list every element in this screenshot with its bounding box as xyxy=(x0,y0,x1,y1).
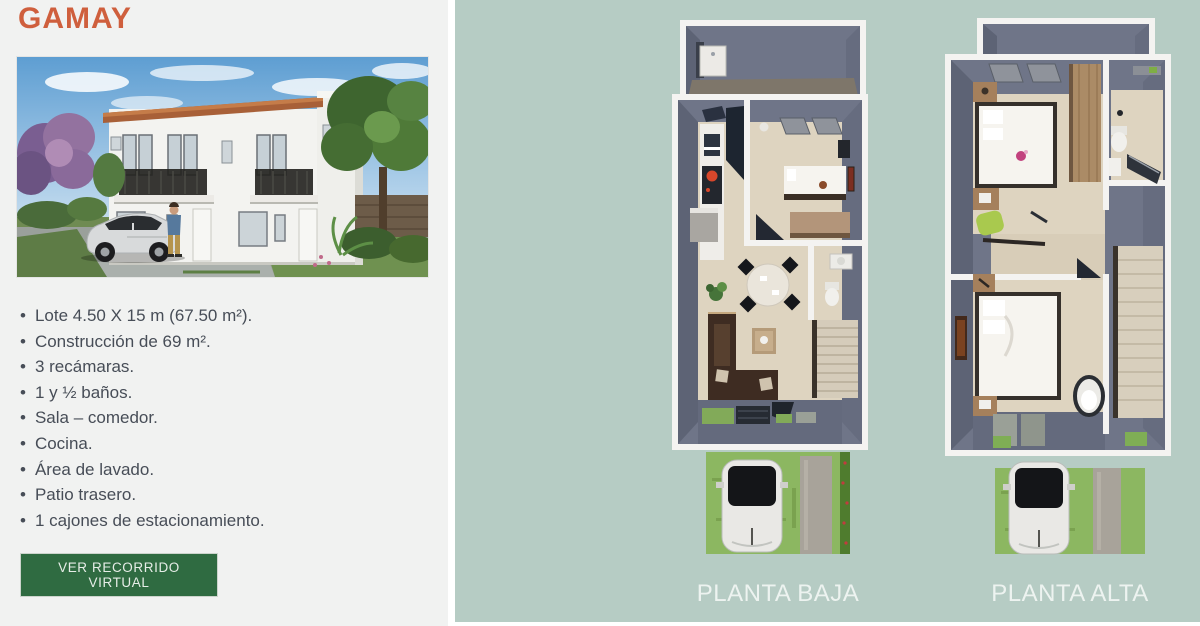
house-render-image xyxy=(17,57,428,277)
upper-floor-label: PLANTA ALTA xyxy=(955,580,1185,608)
feature-item: Cocina. xyxy=(20,431,265,457)
feature-item: 1 y ½ baños. xyxy=(20,380,265,406)
feature-item: Construcción de 69 m². xyxy=(20,329,265,355)
page-title: GAMAY xyxy=(18,2,132,36)
upper-floor-plan-image xyxy=(943,16,1173,558)
gamay-listing-page: GAMAY xyxy=(0,0,1200,626)
feature-item: Sala – comedor. xyxy=(20,405,265,431)
car-top-view xyxy=(1003,462,1075,554)
ground-floor-plan-svg xyxy=(672,18,884,558)
feature-item: 3 recámaras. xyxy=(20,354,265,380)
feature-item: Patio trasero. xyxy=(20,482,265,508)
floorplans-panel: PLANTA BAJA PLANTA ALTA xyxy=(455,0,1200,622)
feature-item: Área de lavado. xyxy=(20,457,265,483)
driveway-ground xyxy=(706,452,850,554)
patio-section xyxy=(680,20,866,104)
ground-floor-label: PLANTA BAJA xyxy=(672,580,884,608)
feature-list: Lote 4.50 X 15 m (67.50 m²). Construcció… xyxy=(20,303,265,533)
feature-item: Lote 4.50 X 15 m (67.50 m²). xyxy=(20,303,265,329)
listing-panel: GAMAY xyxy=(0,0,448,626)
driveway-upper xyxy=(995,462,1145,554)
staircase-upper xyxy=(1113,246,1163,446)
house-render-svg xyxy=(17,57,428,277)
virtual-tour-button[interactable]: VER RECORRIDO VIRTUAL xyxy=(20,553,218,597)
feature-item: 1 cajones de estacionamiento. xyxy=(20,508,265,534)
upper-floor-plan-svg xyxy=(943,16,1173,558)
car-top-view xyxy=(716,460,788,552)
ground-floor-plan-image xyxy=(672,18,884,558)
staircase-ground xyxy=(812,320,858,398)
